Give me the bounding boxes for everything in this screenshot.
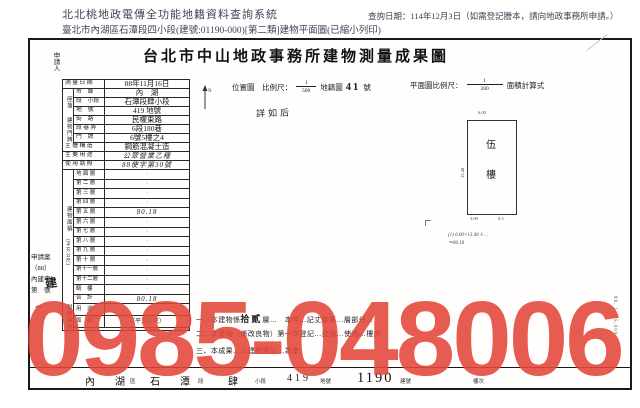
floor-value: · (105, 171, 189, 177)
floor-row: 第 三 層· (74, 189, 189, 199)
document-subtitle: 臺北市內湖區石潭段四小段(建號:01190-000)[第二類]建物平面圖(已縮小… (62, 22, 381, 36)
floor-row: 第 七 層· (74, 228, 189, 238)
table-row: 測 量 日 期 88年11月16日 (63, 80, 189, 89)
section-label: 段 小段 (74, 98, 105, 106)
floor-label: 第 三 層 (74, 189, 105, 198)
page-title: 台北市中山地政事務所建物測量成果圖 (143, 45, 449, 66)
street-label: 街 路 (74, 116, 105, 124)
land-no-value: 419 地號 (105, 107, 189, 115)
floor-plan-scale: 平面圖比例尺： 1 200 面積計算式 (410, 78, 544, 92)
location-map-label: 位置圖 比例尺： (232, 82, 292, 93)
license-value: 88使字第30號 (105, 162, 189, 169)
case-line-2: （88） (31, 263, 61, 274)
structure-label: 主 體 構 造 (63, 143, 105, 151)
floor-plan-scale-fraction: 1 200 (467, 78, 503, 92)
dimension-bottom-2: 0.5 (498, 216, 504, 221)
table-row: 使 用 執 照 88使字第30號 (63, 161, 189, 170)
system-title: 北北桃地政電傳全功能地籍資料查詢系統 (62, 6, 278, 22)
lane-label: 段 巷 弄 (74, 125, 105, 133)
case-line-1: 申請案 (31, 252, 61, 263)
table-row: 主 體 構 造 鋼筋混凝土造 (63, 143, 189, 152)
floor-row: 第 六 層· (74, 218, 189, 228)
svg-text:N: N (208, 89, 212, 94)
floor-label: 第 四 層 (74, 199, 105, 208)
north-arrow-icon: N (200, 85, 214, 116)
door-plate-value: 6號5樓之4 (105, 134, 189, 142)
area-calc-label: 面積計算式 (507, 80, 545, 91)
table-row: 段 小段 石潭段肆小段 (74, 98, 189, 107)
land-no-label: 地 號 (74, 107, 105, 115)
floor-value: 80.18 (105, 209, 189, 216)
floor-value: · (105, 229, 189, 235)
floor-row: 第 四 層· (74, 199, 189, 209)
location-group-label: 座落 (63, 89, 74, 116)
dimension-left: 13.40 (460, 168, 465, 178)
floor-label: 第 七 層 (74, 228, 105, 237)
floor-label: 地 面 層 (74, 170, 105, 179)
table-row: 主 要 用 途 公眾營業乙種 (63, 152, 189, 161)
floor-value: · (105, 181, 189, 187)
floor-value: · (105, 219, 189, 225)
floor-row: 地 面 層· (74, 170, 189, 180)
floor-label: 第 九 層 (74, 247, 105, 256)
floor-value: · (105, 200, 189, 206)
query-date: 查詢日期：114年12月3日（如需登記謄本，請向地政事務所申請。） (368, 10, 618, 22)
floor-value: · (105, 238, 189, 244)
dimension-top: 6.00 (478, 110, 486, 115)
usage-value: 公眾營業乙種 (105, 153, 189, 160)
cadastral-map-unit: 號 (363, 82, 371, 93)
section-value: 石潭段肆小段 (105, 98, 189, 106)
fraction-denominator: 200 (467, 84, 503, 92)
floor-row: 第 十 層· (74, 256, 189, 266)
floor-plan-scale-label: 平面圖比例尺： (410, 80, 463, 91)
floor-plan-char-top: 伍 (486, 136, 496, 151)
address-group-label: 建物門牌 (63, 116, 74, 143)
fraction-denominator: 500 (296, 86, 316, 94)
district-label: 市 鄉 (74, 89, 105, 97)
floor-label: 第 八 層 (74, 237, 105, 246)
floor-row: 第 九 層· (74, 247, 189, 257)
floor-row: 第 二 層· (74, 180, 189, 190)
floor-value: · (105, 267, 189, 273)
plan-corner-mark (425, 220, 431, 226)
floor-row: 第十一層· (74, 266, 189, 276)
location-scale-fraction: 1 500 (296, 80, 316, 94)
survey-date-value: 88年11月16日 (105, 80, 189, 88)
floor-label: 第 十 層 (74, 256, 105, 265)
license-label: 使 用 執 照 (63, 161, 105, 169)
floor-label: 第 六 層 (74, 218, 105, 227)
floor-value: · (105, 258, 189, 264)
floor-row: 第 八 層· (74, 237, 189, 247)
door-plate-label: 門 牌 (74, 134, 105, 142)
applicant-label: 申請人 (50, 52, 60, 72)
structure-value: 鋼筋混凝土造 (105, 143, 189, 151)
cadastral-map-number: 41 (346, 82, 361, 93)
floor-area-unit: （平方公尺） (66, 236, 71, 269)
floor-plan-char-bottom: 樓 (486, 166, 496, 181)
cadastral-map-label: 地籍圖 (320, 82, 343, 93)
floor-label: 第 二 層 (74, 180, 105, 189)
location-section: 座落 市 鄉 內 湖 段 小段 石潭段肆小段 地 號 419 地號 (63, 89, 189, 116)
usage-label: 主 要 用 途 (63, 152, 105, 160)
street-value: 民權東路 (105, 116, 189, 124)
area-calc-line-2: ＝80.18 (448, 239, 464, 246)
district-value: 內 湖 (105, 89, 189, 97)
floor-label: 第 五 層 (74, 208, 105, 217)
survey-date-label: 測 量 日 期 (63, 80, 105, 88)
area-calc-line-1: (1) 6.00×13.40＋… (448, 231, 488, 238)
address-section: 建物門牌 街 路 民權東路 段 巷 弄 6段180巷 門 牌 6號5樓之4 (63, 116, 189, 143)
lane-value: 6段180巷 (105, 125, 189, 133)
floor-row: 第 五 層80.18 (74, 208, 189, 218)
location-map-scale: 位置圖 比例尺： 1 500 地籍圖 41 號 (232, 80, 371, 94)
dimension-bottom-1: 3.00 (470, 216, 478, 221)
floor-value: · (105, 190, 189, 196)
detail-note-handwriting: 詳如后 (256, 106, 292, 120)
floor-area-title: 建物面積 (65, 206, 71, 232)
floor-label: 第十一層 (74, 266, 105, 275)
watermark-stamp: 0985-048006 (24, 286, 622, 392)
floor-value: · (105, 248, 189, 254)
